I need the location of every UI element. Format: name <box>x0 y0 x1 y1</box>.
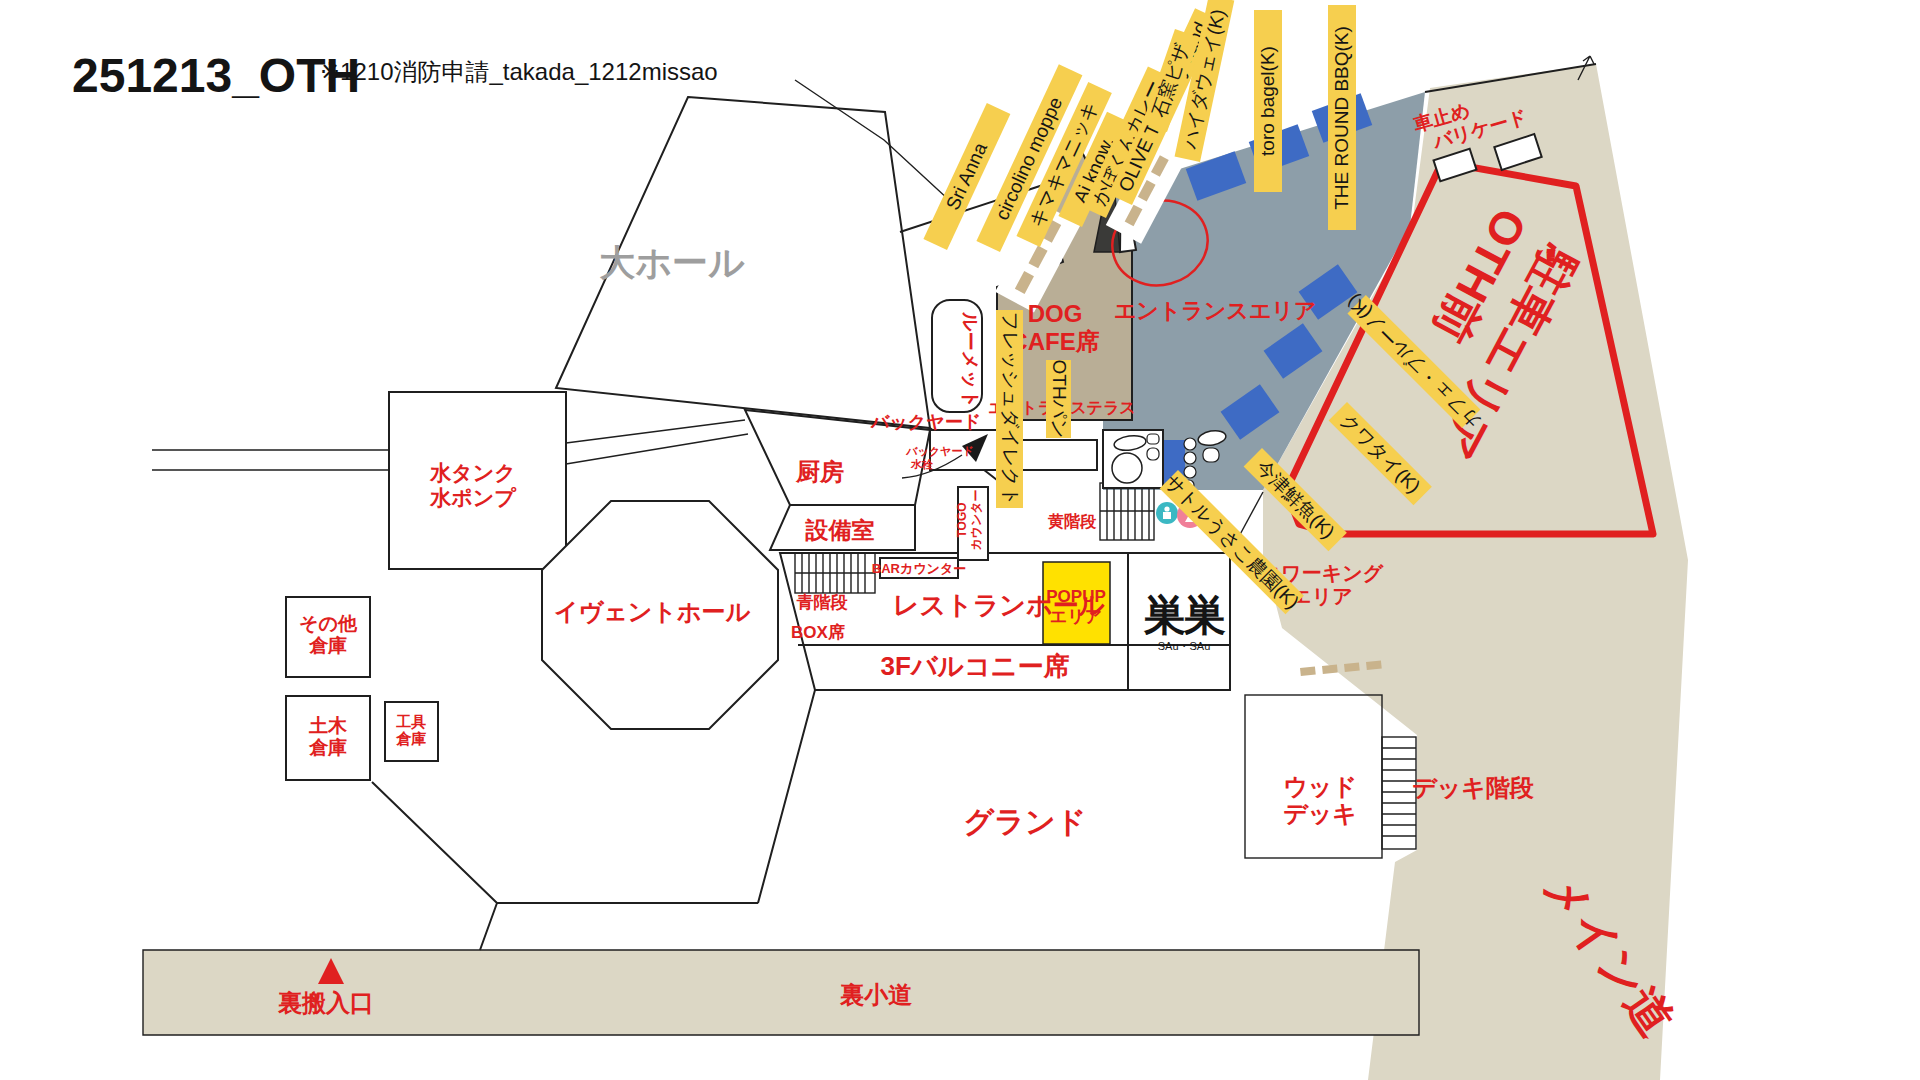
site-map: 大ホール 水タンク 水ポンプ 厨房 イヴェントホール その他 倉庫 土木 倉庫 … <box>0 0 1920 1080</box>
yellow-stairs-hatch <box>1100 483 1154 540</box>
bar-counter-label: BARカウンター <box>872 561 966 576</box>
floor-plan-page: 大ホール 水タンク 水ポンプ 厨房 イヴェントホール その他 倉庫 土木 倉庫 … <box>0 0 1920 1080</box>
page-title: 251213_OTH <box>72 49 360 102</box>
page-subtitle: ※1210消防申請_takada_1212missao <box>320 58 718 85</box>
event-hall-label: イヴェントホール <box>554 598 750 625</box>
civil-storage-label-2: 倉庫 <box>308 737 347 758</box>
civil-storage-label-1: 土木 <box>308 715 348 736</box>
popup-label-1: POPUP <box>1046 587 1106 606</box>
equipment-room-label: 設備室 <box>805 517 875 543</box>
water-tank-label-2: 水ポンプ <box>429 486 517 509</box>
deck-stairs-hatch <box>1382 737 1416 849</box>
ground-label: グランド <box>964 805 1087 838</box>
backyard-tap-label-2: 水栓 <box>910 458 934 470</box>
wood-deck-label-1: ウッド <box>1283 773 1357 800</box>
kitchen-label: 厨房 <box>795 458 844 485</box>
svg-text:カウンター: カウンター <box>969 489 983 550</box>
svg-text:TOGO: TOGO <box>955 502 969 537</box>
dog-cafe-label-2: CAFE席 <box>1010 328 1099 355</box>
svg-text:OTHパン: OTHパン <box>1049 360 1070 439</box>
vendor-label: THE ROUND BBQ(K) <box>1328 5 1356 230</box>
blue-stairs-label: 青階段 <box>797 593 849 612</box>
svg-text:フレッシュダイレクト: フレッシュダイレクト <box>1000 312 1021 506</box>
back-entrance-label: 裏搬入口 <box>277 989 374 1016</box>
other-storage-label-2: 倉庫 <box>308 635 347 656</box>
popup-label-2: エリア <box>1050 607 1102 626</box>
balcony-3f-label: 3Fバルコニー席 <box>881 651 1070 681</box>
backyard-tap-label-1: バックヤード <box>905 445 973 457</box>
susu-logo: 巣巣 <box>1143 592 1226 639</box>
backyard-label: バックヤード <box>870 412 981 432</box>
big-hall-label: 大ホール <box>599 242 745 283</box>
yellow-stairs-label: 黄階段 <box>1047 512 1097 530</box>
svg-text:toro bagel(K): toro bagel(K) <box>1257 46 1278 156</box>
tool-storage-label-1: 工具 <box>396 713 426 730</box>
vendor-label: toro bagel(K) <box>1254 10 1282 192</box>
vendor-label: OTHパン <box>1046 360 1071 439</box>
box-seats-label: BOX席 <box>791 622 845 642</box>
vendor-label: フレッシュダイレクト <box>996 310 1023 508</box>
back-path-label: 裏小道 <box>839 981 913 1008</box>
susu-logo-sub: SAu・SAu <box>1158 640 1211 652</box>
deck-stairs-label: デッキ階段 <box>1412 774 1535 801</box>
entrance-area-label: エントランスエリア <box>1114 298 1317 323</box>
wood-deck-label-2: デッキ <box>1283 800 1357 827</box>
svg-text:THE ROUND BBQ(K): THE ROUND BBQ(K) <box>1331 26 1352 210</box>
other-storage-label-1: その他 <box>299 613 358 634</box>
dog-cafe-label-1: DOG <box>1028 300 1083 327</box>
tool-storage-label-2: 倉庫 <box>395 730 426 747</box>
roomette-label: ルーメット <box>960 311 981 409</box>
water-tank-label-1: 水タンク <box>429 461 515 484</box>
